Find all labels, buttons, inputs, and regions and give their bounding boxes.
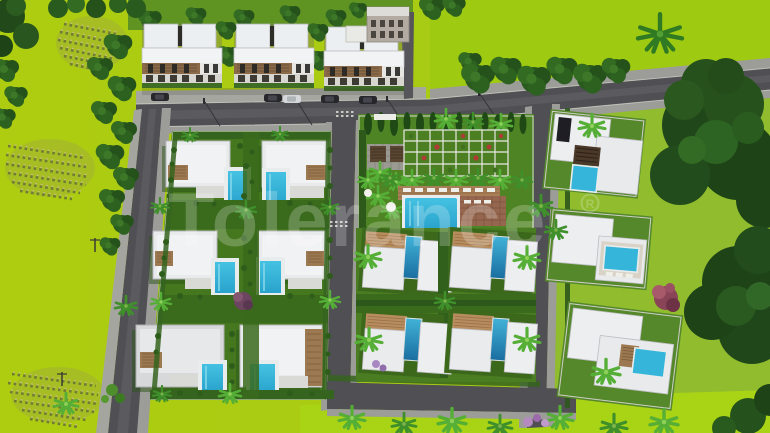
svg-text:Tolerance: Tolerance [168,178,548,263]
svg-text:R: R [586,197,595,211]
